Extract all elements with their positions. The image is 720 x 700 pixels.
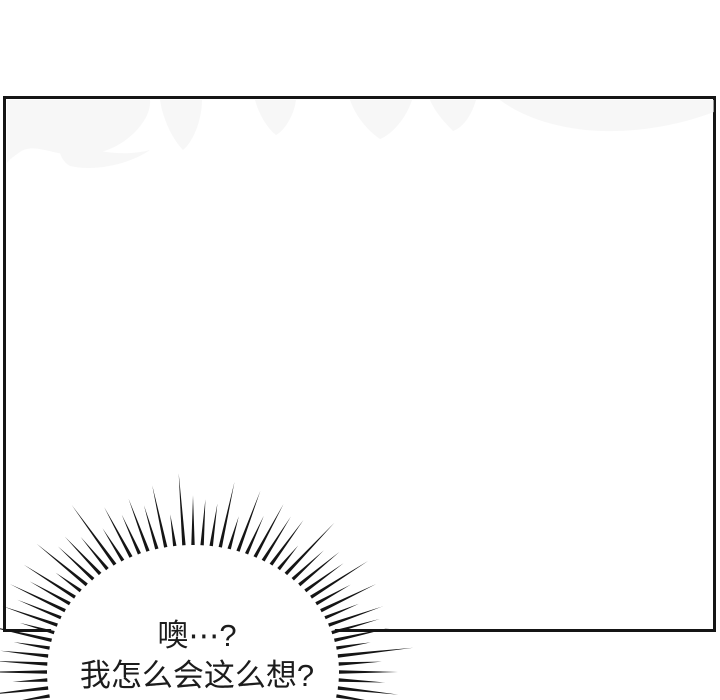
comic-page: 噢⋯? 我怎么会这么想? [0, 0, 720, 700]
faint-background-art [7, 100, 714, 168]
speech-line-2: 我怎么会这么想? [80, 656, 314, 696]
speech-line-1: 噢⋯? [80, 616, 314, 656]
speech-bubble-text: 噢⋯? 我怎么会这么想? [80, 616, 314, 696]
panel-overlay [0, 0, 720, 700]
